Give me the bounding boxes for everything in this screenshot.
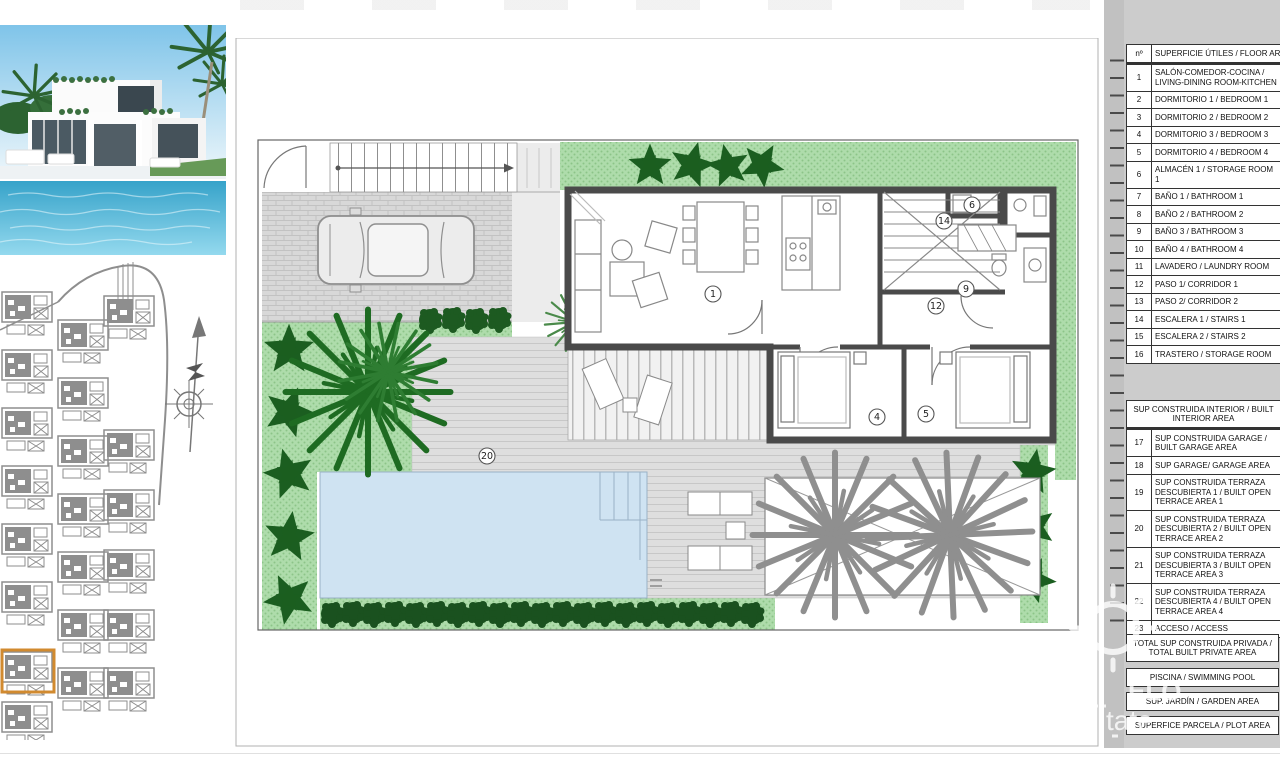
north-arrow-icon	[165, 316, 213, 452]
table-row: 20 SUP CONSTRUIDA TERRAZA DESCUBIERTA 2 …	[1127, 510, 1280, 547]
table-row: 21 SUP CONSTRUIDA TERRAZA DESCUBIERTA 3 …	[1127, 547, 1280, 584]
table-row: 4 DORMITORIO 3 / BEDROOM 3	[1127, 126, 1280, 144]
room-label: 12	[930, 301, 942, 312]
room-name-cell: BAÑO 4 / BATHROOM 4	[1152, 241, 1280, 258]
slatted-terrace	[568, 347, 770, 440]
room-name-cell: ALMACÉN 1 / STORAGE ROOM 1	[1152, 162, 1280, 188]
room-number-cell: 13	[1127, 294, 1152, 311]
room-number-cell: 11	[1127, 259, 1152, 276]
table-row: 5 DORMITORIO 4 / BEDROOM 4	[1127, 143, 1280, 161]
table-row: 11 LAVADERO / LAUNDRY ROOM	[1127, 258, 1280, 276]
room-number-cell: 10	[1127, 241, 1152, 258]
room-name-cell: LAVADERO / LAUNDRY ROOM	[1152, 259, 1280, 276]
room-number-cell: 14	[1127, 311, 1152, 328]
room-name-cell: SUP CONSTRUIDA TERRAZA DESCUBIERTA 2 / B…	[1152, 511, 1280, 547]
room-name-cell: DORMITORIO 4 / BEDROOM 4	[1152, 144, 1280, 161]
room-name-cell: ESCALERA 2 / STAIRS 2	[1152, 329, 1280, 346]
room-number-cell: 5	[1127, 144, 1152, 161]
table-row: 15 ESCALERA 2 / STAIRS 2	[1127, 328, 1280, 346]
room-name-cell: TRASTERO / STORAGE ROOM	[1152, 346, 1280, 363]
site-plan	[0, 262, 230, 740]
room-number-cell: 20	[1127, 511, 1152, 547]
bottom-divider	[0, 753, 1280, 754]
cut-off-watermark-top	[240, 0, 1090, 10]
room-label: 20	[481, 451, 493, 462]
room-name-cell: PASO 2/ CORRIDOR 2	[1152, 294, 1280, 311]
built-area-table: SUP CONSTRUIDA INTERIOR / BUILT INTERIOR…	[1126, 400, 1280, 638]
room-name-cell: SUP CONSTRUIDA TERRAZA DESCUBIERTA 4 / B…	[1152, 584, 1280, 620]
table-row: 2 DORMITORIO 1 / BEDROOM 1	[1127, 91, 1280, 109]
room-name-cell: PASO 1/ CORRIDOR 1	[1152, 276, 1280, 293]
room-number-cell: 8	[1127, 206, 1152, 223]
room-name-cell: ESCALERA 1 / STAIRS 1	[1152, 311, 1280, 328]
table-row: 19 SUP CONSTRUIDA TERRAZA DESCUBIERTA 1 …	[1127, 474, 1280, 511]
room-label: 5	[923, 409, 929, 420]
garden-area-row: SUP. JARDÍN / GARDEN AREA	[1126, 692, 1279, 711]
room-name-cell: SUP GARAGE/ GARAGE AREA	[1152, 457, 1280, 474]
site-plan-units	[2, 292, 154, 740]
room-number-cell: 2	[1127, 92, 1152, 109]
room-number-cell: 7	[1127, 189, 1152, 206]
room-number-cell: 19	[1127, 475, 1152, 511]
room-name-cell: SUP CONSTRUIDA TERRAZA DESCUBIERTA 3 / B…	[1152, 548, 1280, 584]
table-row: 6 ALMACÉN 1 / STORAGE ROOM 1	[1127, 161, 1280, 188]
room-name-cell: DORMITORIO 1 / BEDROOM 1	[1152, 92, 1280, 109]
room-number-cell: 12	[1127, 276, 1152, 293]
table-row: 1 SALÓN-COMEDOR-COCINA / LIVING-DINING R…	[1127, 64, 1280, 91]
table-row: 17 SUP CONSTRUIDA GARAGE / BUILT GARAGE …	[1127, 429, 1280, 456]
number-column-header: nº	[1127, 45, 1152, 62]
swimming-pool	[320, 472, 662, 598]
table-row: 3 DORMITORIO 2 / BEDROOM 2	[1127, 108, 1280, 126]
room-number-cell: 4	[1127, 127, 1152, 144]
room-number-cell: 17	[1127, 430, 1152, 456]
room-number-cell: 15	[1127, 329, 1152, 346]
room-name-cell: SUP CONSTRUIDA GARAGE / BUILT GARAGE ARE…	[1152, 430, 1280, 456]
room-number-cell: 9	[1127, 224, 1152, 241]
room-label: 14	[938, 216, 950, 227]
table-row: 10 BAÑO 4 / BATHROOM 4	[1127, 240, 1280, 258]
row-ticks	[1110, 44, 1124, 636]
table-row: 13 PASO 2/ CORRIDOR 2	[1127, 293, 1280, 311]
table-row: 7 BAÑO 1 / BATHROOM 1	[1127, 188, 1280, 206]
plot-area-row: SUPERFICE PARCELA / PLOT AREA	[1126, 716, 1279, 735]
room-number-cell: 16	[1127, 346, 1152, 363]
room-label: 9	[963, 284, 969, 295]
room-number-cell: 6	[1127, 162, 1152, 188]
room-label: 1	[710, 289, 716, 300]
room-name-cell: SALÓN-COMEDOR-COCINA / LIVING-DINING ROO…	[1152, 65, 1280, 91]
floor-plan-sheet-page: 1 4 5 6 9 12 14 20 nº SUPERFICIE ÚTILES	[0, 0, 1280, 768]
main-floor-plan: 1 4 5 6 9 12 14 20	[232, 38, 1102, 748]
entrance-stairs	[260, 143, 517, 192]
floor-area-table: nº SUPERFICIE ÚTILES / FLOOR AREA 1 SALÓ…	[1126, 44, 1280, 364]
table-row: 8 BAÑO 2 / BATHROOM 2	[1127, 205, 1280, 223]
room-label: 4	[874, 412, 880, 423]
car-top-view	[318, 208, 474, 292]
villa-photo	[0, 25, 226, 255]
table-row: 9 BAÑO 3 / BATHROOM 3	[1127, 223, 1280, 241]
built-area-title: SUP CONSTRUIDA INTERIOR / BUILT INTERIOR…	[1127, 401, 1280, 429]
room-name-cell: BAÑO 2 / BATHROOM 2	[1152, 206, 1280, 223]
photo-pool	[0, 180, 226, 255]
table-row: 22 SUP CONSTRUIDA TERRAZA DESCUBIERTA 4 …	[1127, 583, 1280, 620]
room-name-cell: DORMITORIO 3 / BEDROOM 3	[1152, 127, 1280, 144]
swimming-pool-row: PISCINA / SWIMMING POOL	[1126, 668, 1279, 687]
room-number-cell: 3	[1127, 109, 1152, 126]
table-row: 14 ESCALERA 1 / STAIRS 1	[1127, 310, 1280, 328]
room-name-cell: BAÑO 1 / BATHROOM 1	[1152, 189, 1280, 206]
floor-area-table-header: nº SUPERFICIE ÚTILES / FLOOR AREA	[1127, 45, 1280, 64]
table-row: 18 SUP GARAGE/ GARAGE AREA	[1127, 456, 1280, 474]
table-row: 12 PASO 1/ CORRIDOR 1	[1127, 275, 1280, 293]
total-built-private-row: TOTAL SUP CONSTRUIDA PRIVADA / TOTAL BUI…	[1126, 634, 1279, 662]
room-number-cell: 22	[1127, 584, 1152, 620]
kitchen-fixtures	[782, 196, 840, 290]
room-number-cell: 21	[1127, 548, 1152, 584]
floor-area-title: SUPERFICIE ÚTILES / FLOOR AREA	[1152, 45, 1280, 62]
room-number-cell: 18	[1127, 457, 1152, 474]
room-name-cell: DORMITORIO 2 / BEDROOM 2	[1152, 109, 1280, 126]
room-label: 6	[969, 200, 975, 211]
table-row: 16 TRASTERO / STORAGE ROOM	[1127, 345, 1280, 363]
room-name-cell: BAÑO 3 / BATHROOM 3	[1152, 224, 1280, 241]
room-name-cell: SUP CONSTRUIDA TERRAZA DESCUBIERTA 1 / B…	[1152, 475, 1280, 511]
room-number-cell: 1	[1127, 65, 1152, 91]
